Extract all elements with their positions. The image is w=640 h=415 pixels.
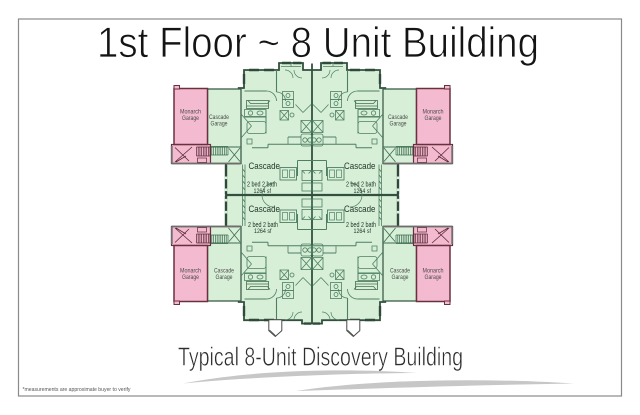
- svg-text:Garage: Garage: [216, 275, 234, 281]
- svg-text:Garage: Garage: [182, 116, 200, 122]
- svg-text:1st Floor ~ 8 Unit Building: 1st Floor ~ 8 Unit Building: [97, 19, 539, 67]
- svg-text:Garage: Garage: [182, 275, 200, 281]
- svg-text:Cascade: Cascade: [344, 161, 376, 172]
- svg-text:Garage: Garage: [425, 116, 443, 122]
- svg-text:Cascade: Cascade: [390, 269, 411, 275]
- svg-text:Cascade: Cascade: [344, 204, 376, 215]
- svg-text:Garage: Garage: [392, 275, 410, 281]
- svg-text:1264 sf: 1264 sf: [254, 228, 272, 235]
- svg-text:1264 sf: 1264 sf: [354, 188, 372, 195]
- svg-text:Cascade: Cascade: [209, 115, 230, 121]
- svg-text:Cascade: Cascade: [388, 115, 409, 121]
- svg-text:Monarch: Monarch: [423, 110, 444, 116]
- svg-text:Garage: Garage: [211, 122, 229, 128]
- svg-text:Monarch: Monarch: [180, 269, 201, 275]
- svg-text:*measurements are approximate: *measurements are approximate buyer to v…: [23, 387, 131, 393]
- svg-text:Garage: Garage: [390, 122, 408, 128]
- svg-text:Typical 8-Unit Discovery Build: Typical 8-Unit Discovery Building: [178, 342, 463, 372]
- svg-text:Monarch: Monarch: [180, 110, 201, 116]
- svg-text:Cascade: Cascade: [249, 204, 281, 215]
- svg-text:Cascade: Cascade: [214, 269, 235, 275]
- svg-text:Monarch: Monarch: [423, 269, 444, 275]
- svg-text:Garage: Garage: [425, 275, 443, 281]
- svg-text:Cascade: Cascade: [249, 161, 281, 172]
- svg-text:1264 sf: 1264 sf: [254, 188, 272, 195]
- svg-text:1264 sf: 1264 sf: [354, 228, 372, 235]
